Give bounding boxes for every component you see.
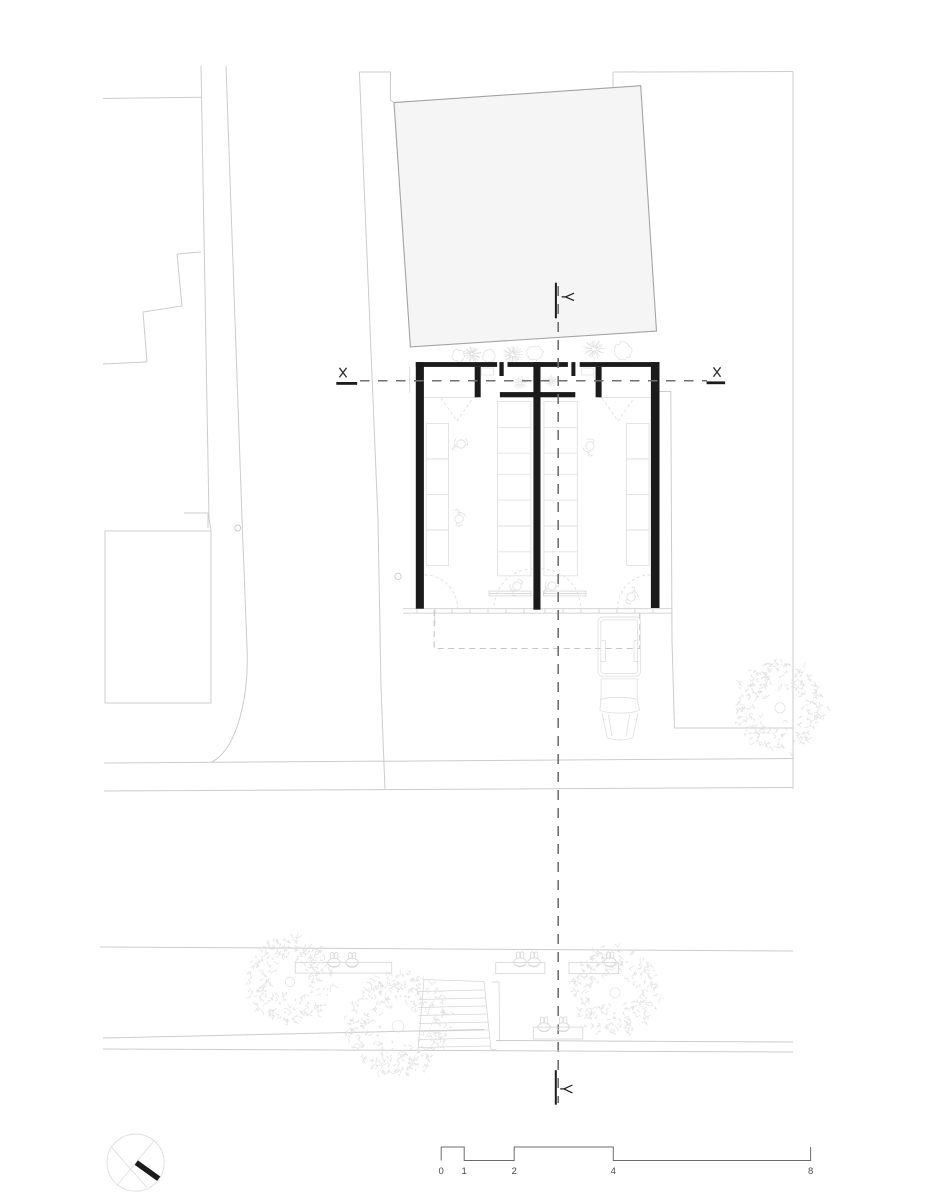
svg-text:4: 4 [611,1166,616,1177]
svg-text:0: 0 [439,1166,444,1177]
svg-text:1: 1 [462,1166,467,1177]
svg-text:8: 8 [808,1166,813,1177]
svg-text:2: 2 [512,1166,517,1177]
